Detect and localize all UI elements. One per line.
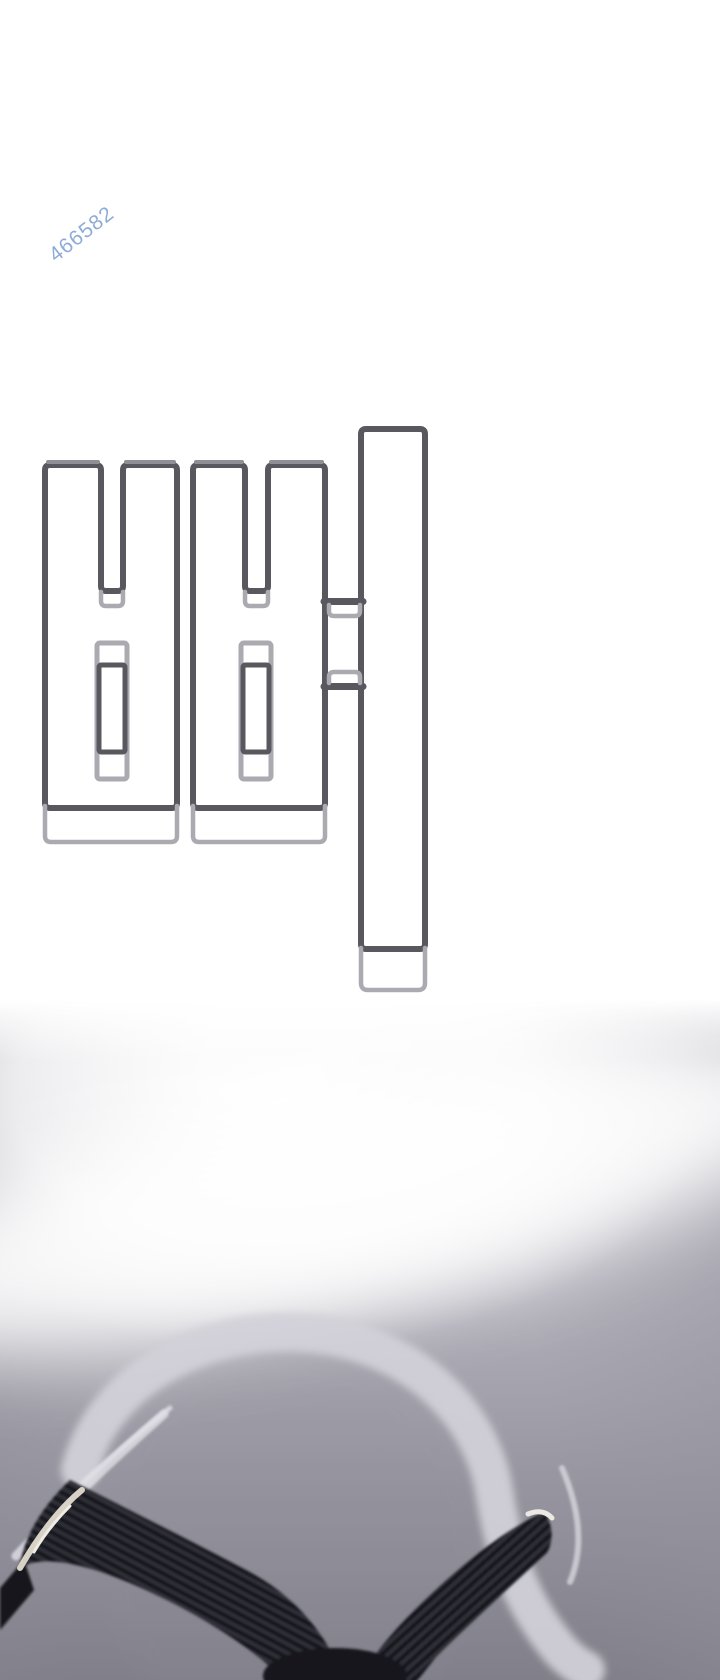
sfx-b2-outline xyxy=(193,465,325,808)
kick-artwork-panel xyxy=(0,1000,720,1680)
swoosh-sliver xyxy=(562,1468,578,1582)
kick-scene xyxy=(0,1000,720,1680)
left-heel xyxy=(0,1560,34,1630)
sound-effect-glyph xyxy=(0,0,720,1000)
sfx-vowel-stem xyxy=(361,429,425,949)
sfx-b1-outline xyxy=(45,465,177,808)
webtoon-page: 466582 xyxy=(0,0,720,1680)
